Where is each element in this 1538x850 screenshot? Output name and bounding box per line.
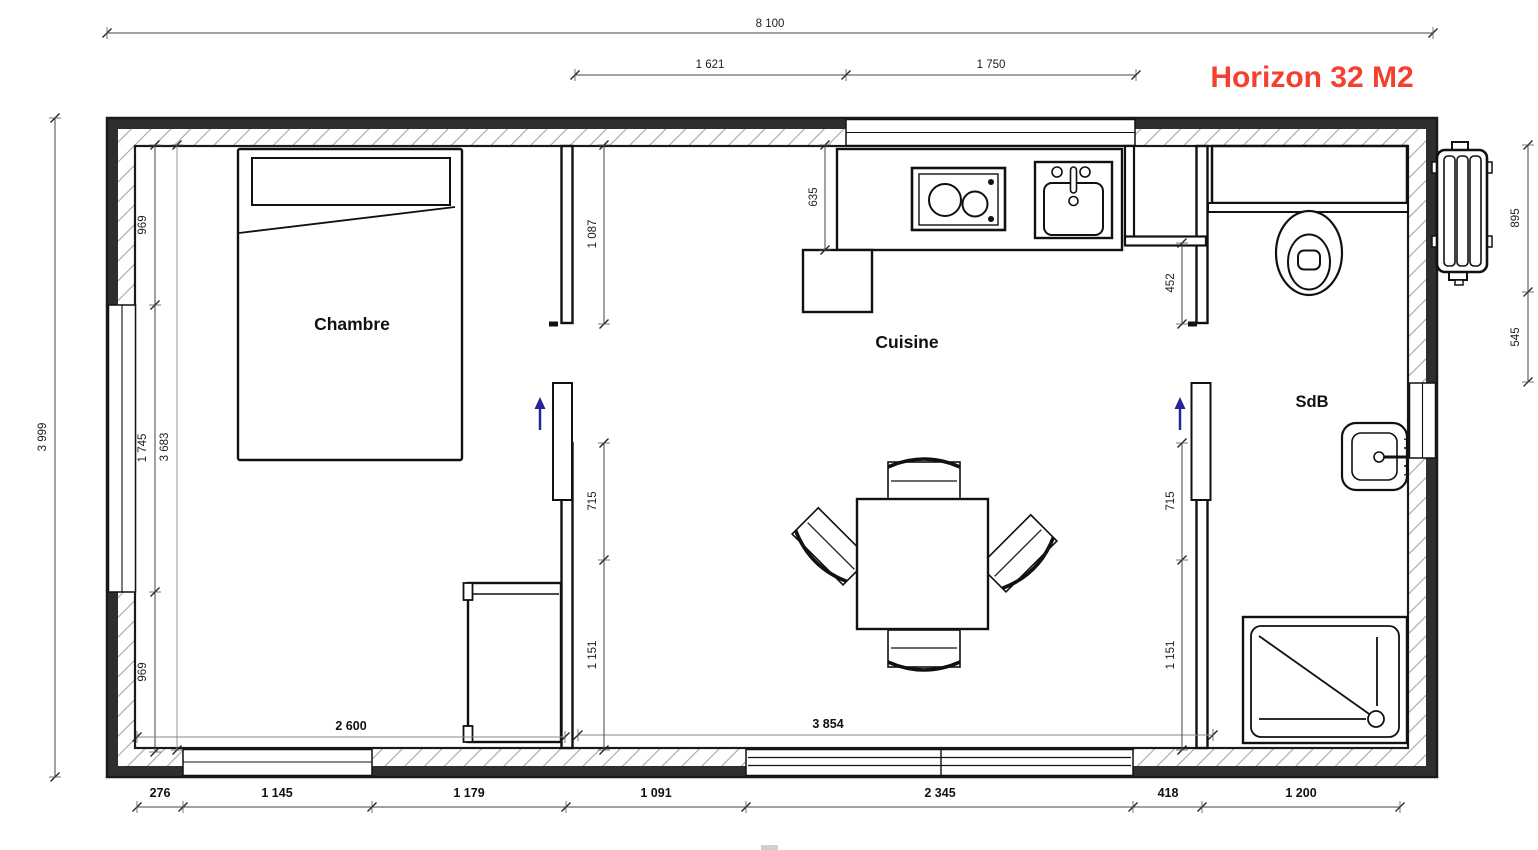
cooktop-icon (912, 168, 1005, 230)
left-wall-window (109, 305, 136, 592)
dim-top-2: 1 750 (977, 59, 1006, 71)
shower-icon (1243, 617, 1407, 743)
floor-plan-page: 8 100 1 621 1 750 3 999 969 1 745 969 3 … (0, 0, 1538, 850)
dim-left-1: 969 (137, 215, 149, 234)
bedroom-furniture (238, 149, 561, 742)
washbasin-icon (1342, 423, 1409, 490)
dim-living-width: 3 854 (812, 717, 843, 731)
dim-left-2: 1 745 (137, 434, 149, 463)
water-heater-icon (1432, 142, 1492, 285)
dim-bath-top: 452 (1165, 273, 1177, 292)
technical-cupboard (1125, 146, 1206, 246)
dim-bottom-3: 1 179 (453, 786, 484, 800)
kitchen-window (846, 120, 1135, 146)
dim-bedroom-width: 2 600 (335, 719, 366, 733)
dim-overall-width: 8 100 (756, 18, 785, 30)
dim-left-3: 969 (137, 662, 149, 681)
dim-bottom-6: 418 (1158, 786, 1179, 800)
cropped-artifact (761, 845, 778, 850)
door-slide-arrow-icon (1175, 397, 1186, 430)
dining-table (857, 499, 988, 629)
dim-overall-height: 3 999 (37, 423, 49, 452)
bathroom-sliding-door-leaf (1192, 383, 1211, 500)
bedroom-sliding-door-leaf (553, 383, 572, 500)
pocket-door-stop (1188, 322, 1197, 327)
wardrobe (464, 583, 562, 742)
pocket-door-stop (549, 322, 558, 327)
bathroom-fixtures (1243, 142, 1492, 743)
dim-kitchen-depth: 635 (808, 187, 820, 206)
dim-right-2: 545 (1510, 327, 1522, 346)
dim-bottom-2: 1 145 (261, 786, 292, 800)
dim-bottom-5: 2 345 (924, 786, 955, 800)
living-sliding-bay-door (746, 750, 1133, 776)
dim-partition-mid: 715 (587, 491, 599, 510)
pillow (252, 158, 450, 205)
kitchen-cabinet (803, 250, 872, 312)
floor-plan-svg: 8 100 1 621 1 750 3 999 969 1 745 969 3 … (0, 0, 1538, 850)
dim-bath-mid: 715 (1165, 491, 1177, 510)
shower-drain (1368, 711, 1384, 727)
bathroom-partition-upper (1197, 146, 1208, 323)
dining-set (790, 459, 1059, 670)
dim-bath-bottom: 1 151 (1165, 641, 1177, 670)
bathroom-window (1410, 383, 1436, 458)
kitchen-sink-icon (1035, 162, 1112, 238)
dim-bottom-7: 1 200 (1285, 786, 1316, 800)
door-arrows (535, 397, 1186, 430)
room-label-kitchen: Cuisine (875, 332, 938, 352)
dim-bedroom-height: 3 683 (159, 433, 171, 462)
room-label-bedroom: Chambre (314, 314, 390, 334)
bedroom-window (183, 750, 372, 776)
door-slide-arrow-icon (535, 397, 546, 430)
dim-top-1: 1 621 (696, 59, 725, 71)
dim-partition-bottom: 1 151 (587, 641, 599, 670)
bedroom-partition-upper (562, 146, 573, 323)
dim-bottom-1: 276 (150, 786, 171, 800)
toilet-icon (1276, 211, 1342, 295)
dim-right-1: 895 (1510, 208, 1522, 227)
wall-band-top (107, 118, 1437, 129)
kitchen-fixtures (790, 149, 1122, 670)
dim-bottom-4: 1 091 (640, 786, 671, 800)
dim-partition-top: 1 087 (587, 220, 599, 249)
bed (238, 149, 462, 460)
plan-title: Horizon 32 M2 (1210, 61, 1413, 94)
room-label-bathroom: SdB (1296, 393, 1329, 411)
bathroom-shelf (1208, 146, 1408, 212)
